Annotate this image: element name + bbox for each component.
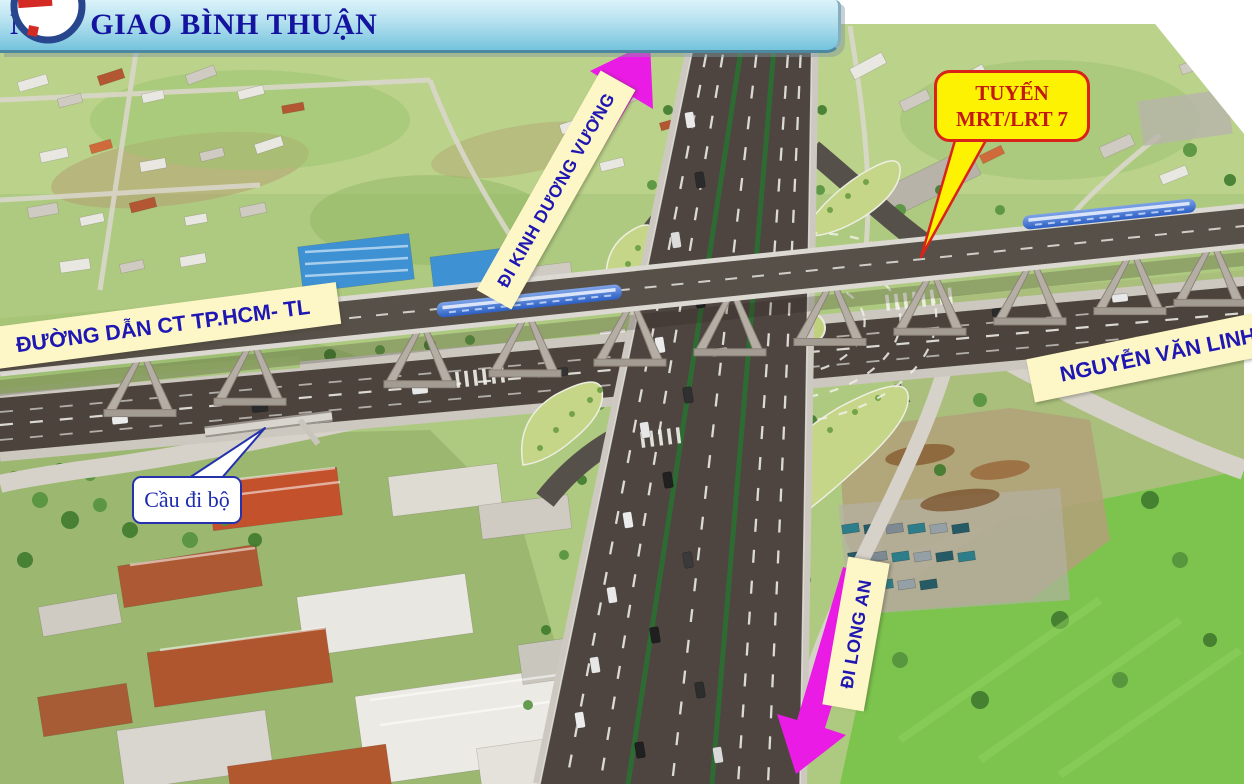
callout-mrt-lrt: TUYẾN MRT/LRT 7	[934, 70, 1090, 142]
slide-title-bar: NÚT GIAO BÌNH THUẬN	[0, 0, 841, 53]
circle-logo-icon	[0, 0, 92, 48]
callout-mrt-line1: TUYẾN	[975, 80, 1049, 106]
callout-cau-di-bo: Cầu đi bộ	[132, 476, 242, 524]
slide: ĐƯỜNG DẪN CT TP.HCM- TL NGUYỄN VĂN LINH …	[0, 0, 1252, 784]
callout-cau-di-bo-text: Cầu đi bộ	[144, 487, 230, 513]
callout-mrt-line2: MRT/LRT 7	[956, 106, 1068, 132]
